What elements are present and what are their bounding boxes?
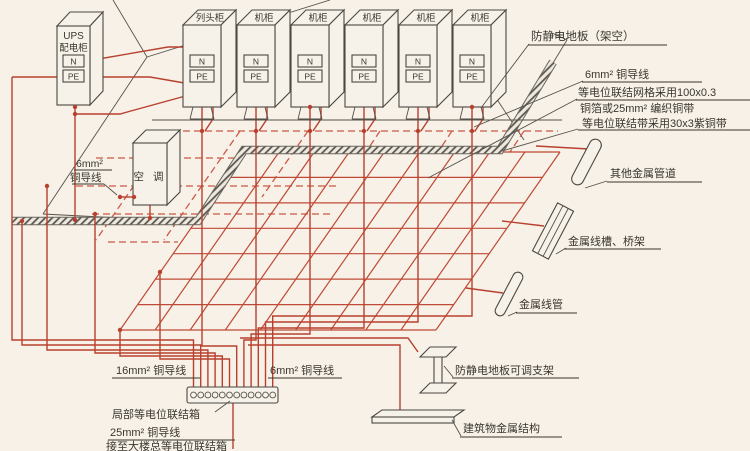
svg-text:N: N [415,57,421,67]
aircon-label: 空 调 [134,170,167,183]
label-local-bonding-box: 局部等电位联结箱 [112,407,200,421]
svg-text:PE: PE [358,72,370,82]
label-building-structure: 建筑物金属结构 [463,421,540,435]
cabinet-1 [183,10,236,119]
label-metal-tray: 金属线槽、桥架 [568,234,645,248]
cabinet-name: 机柜 [470,12,490,24]
cabinet-name: 机柜 [254,12,274,24]
label-other-metal-pipe: 其他金属管道 [610,166,676,180]
cabinet-name: 机柜 [308,12,328,24]
grounding-diagram: 列头柜 机柜 机柜 机柜 机柜 机柜 NPE NPE NPE NPE NPE N… [0,0,750,451]
air-conditioner: 空 调 [133,130,180,205]
ups-title: UPS [63,31,84,42]
cabinet-name: 机柜 [362,12,382,24]
bonding-mesh-grid [120,152,560,330]
svg-text:PE: PE [196,72,208,82]
svg-text:PE: PE [304,72,316,82]
svg-text:PE: PE [250,72,262,82]
ups-cabinet: UPS 配电柜 N PE [57,12,103,105]
svg-text:N: N [199,57,205,67]
pedestal-icon [420,347,456,393]
cabinet-4 [345,10,398,119]
cabinet-3 [291,10,344,119]
label-wire16: 16mm² 铜导线 [116,363,186,377]
label-copper-band: 等电位联结带采用30x3紫铜带 [582,116,727,130]
label-wire25: 25mm² 铜导线 [110,425,180,439]
ups-n-label: N [70,57,76,67]
cabinet-6 [453,10,506,119]
cabinet-name: 列头柜 [196,12,225,24]
label-wire6-bottom: 6mm² 铜导线 [270,363,334,377]
label-wire6-right: 6mm² 铜导线 [585,67,649,81]
ups-subtitle: 配电柜 [59,42,88,54]
ups-pe-label: PE [68,72,80,82]
label-aircon-wire-line2: 铜导线 [70,171,102,184]
svg-text:N: N [469,57,475,67]
label-to-main-bonding-box: 接至大楼总等电位联结箱 [106,439,227,451]
cabinet-2 [237,10,290,119]
svg-text:N: N [361,57,367,67]
label-mesh-line2: 铜箔或25mm² 编织铜带 [580,101,694,115]
pipe-other-icon [570,137,604,187]
svg-text:N: N [253,57,259,67]
grounding-diagram-page: 列头柜 机柜 机柜 机柜 机柜 机柜 NPE NPE NPE NPE NPE N… [0,0,750,451]
label-aircon-wire-line1: 6mm² [76,158,103,170]
terminal-box [187,387,278,403]
cabinet-5 [399,10,452,119]
tray-icon [532,203,573,259]
label-mesh-line1: 等电位联结网格采用100x0.3 [578,85,716,99]
structure-bar-icon [372,410,464,423]
cabinet-name: 机柜 [416,12,436,24]
svg-text:N: N [307,57,313,67]
cabinet-row: 列头柜 机柜 机柜 机柜 机柜 机柜 NPE NPE NPE NPE NPE N… [183,10,506,119]
svg-text:PE: PE [412,72,424,82]
label-antistatic-floor: 防静电地板（架空） [531,29,635,43]
label-metal-conduit: 金属线管 [519,297,563,311]
label-floor-pedestal: 防静电地板可调支架 [455,363,554,377]
svg-text:PE: PE [466,72,478,82]
